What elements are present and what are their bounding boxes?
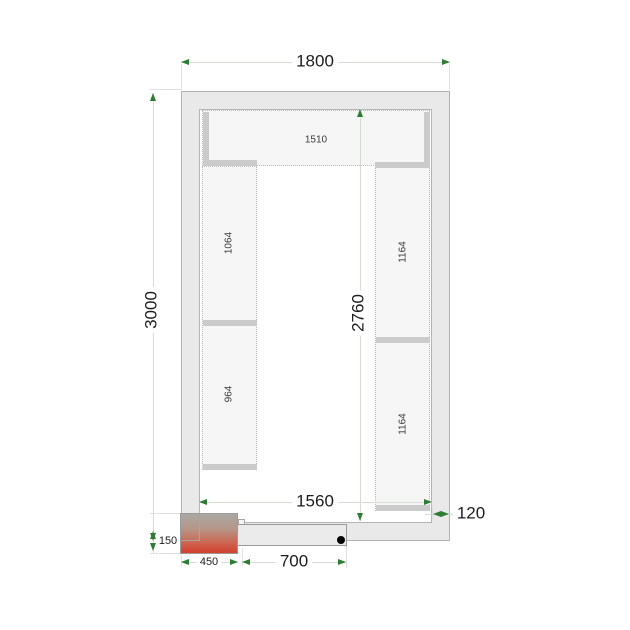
arrow-left-icon <box>199 499 207 505</box>
extension-line <box>449 64 450 90</box>
shelf-edge-left-top <box>203 160 257 166</box>
dim-outer-width: 1800 <box>292 53 338 72</box>
arrow-down-icon <box>150 543 156 551</box>
condensing-unit <box>180 513 238 554</box>
arrow-up-icon <box>150 531 156 539</box>
shelf-edge-right-bottom <box>376 505 430 511</box>
arrow-up-icon <box>357 109 363 117</box>
shelf-edge-right-top <box>375 162 430 168</box>
shelf-right-upper-label: 1164 <box>398 241 409 263</box>
floor-plan: 1510 1064 964 1164 1164 1800 3000 2760 1… <box>0 0 630 630</box>
extension-line <box>150 553 180 554</box>
dim-inner-depth: 2760 <box>350 290 369 336</box>
shelf-edge-top-left <box>203 112 209 164</box>
arrow-left-icon <box>433 511 441 517</box>
shelf-divider-right <box>376 337 430 343</box>
dim-outer-depth: 3000 <box>143 287 162 333</box>
wall-corner-line <box>199 513 200 541</box>
shelf-right-lower-label: 1164 <box>398 413 409 435</box>
arrow-right-icon <box>442 59 450 65</box>
shelf-top-label: 1510 <box>305 135 327 146</box>
arrow-left-icon <box>181 59 189 65</box>
arrow-left-icon <box>181 559 189 565</box>
arrow-right-icon <box>424 499 432 505</box>
dim-wall-thickness: 120 <box>453 505 489 524</box>
shelf-edge-top-right <box>424 112 430 164</box>
extension-line <box>181 64 182 90</box>
arrow-down-icon <box>357 513 363 521</box>
dim-unit-width: 450 <box>197 556 221 568</box>
dim-door-width: 700 <box>276 553 312 572</box>
dim-unit-protrusion: 150 <box>156 535 180 547</box>
extension-line <box>346 544 347 568</box>
shelf-left-upper-label: 1064 <box>224 232 235 254</box>
arrow-up-icon <box>150 93 156 101</box>
extension-line <box>150 89 181 90</box>
door-hinge-dot <box>337 536 345 544</box>
extension-line <box>150 513 180 514</box>
dim-inner-width: 1560 <box>292 493 338 512</box>
shelf-edge-left-bottom <box>203 464 257 470</box>
arrow-right-icon <box>230 559 238 565</box>
arrow-left-icon <box>242 559 250 565</box>
arrow-right-icon <box>441 511 449 517</box>
shelf-left-column <box>202 166 257 470</box>
wall-corner-line <box>181 540 200 541</box>
shelf-divider-left <box>203 320 257 326</box>
door-leaf <box>237 524 347 546</box>
shelf-left-lower-label: 964 <box>224 386 235 403</box>
arrow-right-icon <box>338 559 346 565</box>
